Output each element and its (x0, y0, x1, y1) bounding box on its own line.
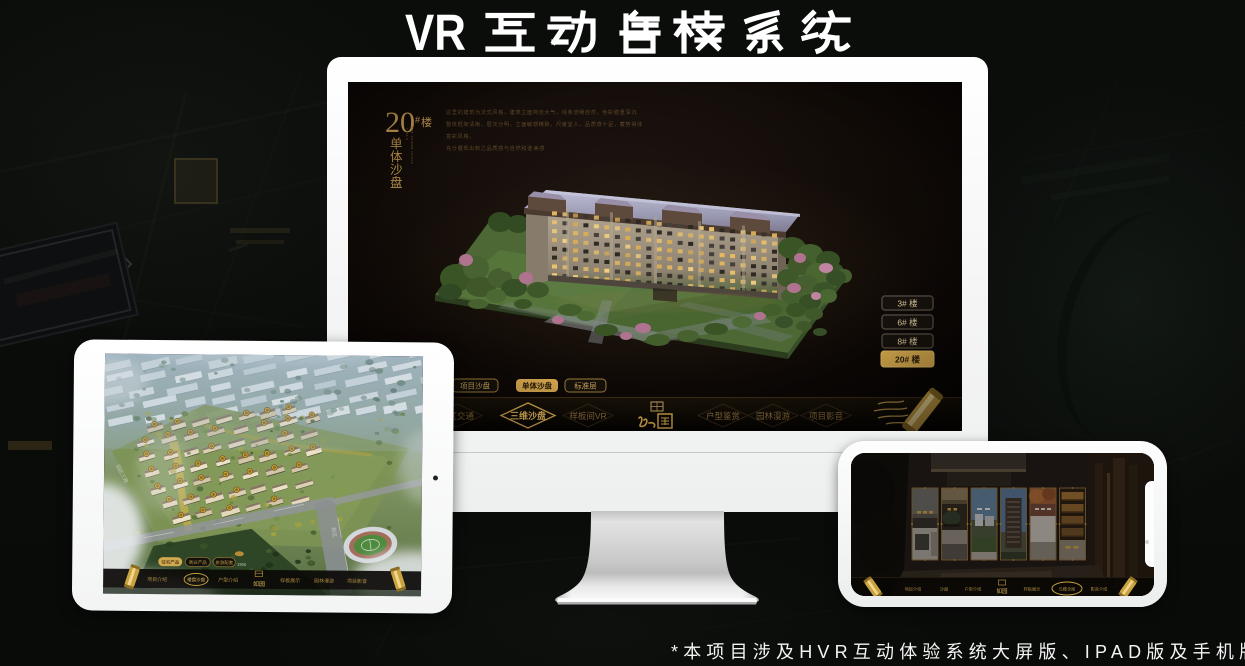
svg-text:VR: VR (405, 5, 466, 58)
svg-text:鸟瞰全图: 鸟瞰全图 (1059, 586, 1076, 593)
svg-text:项目介绍: 项目介绍 (147, 576, 167, 583)
svg-text:1500: 1500 (237, 562, 247, 567)
svg-text:沙盘: 沙盘 (940, 586, 948, 592)
svg-text:样板展示: 样板展示 (1024, 586, 1041, 593)
svg-text:影音介绍: 影音介绍 (1091, 586, 1108, 593)
svg-text:样板展示: 样板展示 (280, 577, 300, 584)
svg-text:如园: 如园 (253, 580, 265, 588)
svg-text:项目介绍: 项目介绍 (905, 586, 922, 593)
svg-text:项目影音: 项目影音 (347, 578, 367, 585)
svg-text:户型介绍: 户型介绍 (965, 586, 982, 593)
svg-text:户型介绍: 户型介绍 (218, 577, 238, 584)
svg-text:如园: 如园 (996, 587, 1008, 595)
svg-text:园林漫游: 园林漫游 (314, 577, 334, 584)
